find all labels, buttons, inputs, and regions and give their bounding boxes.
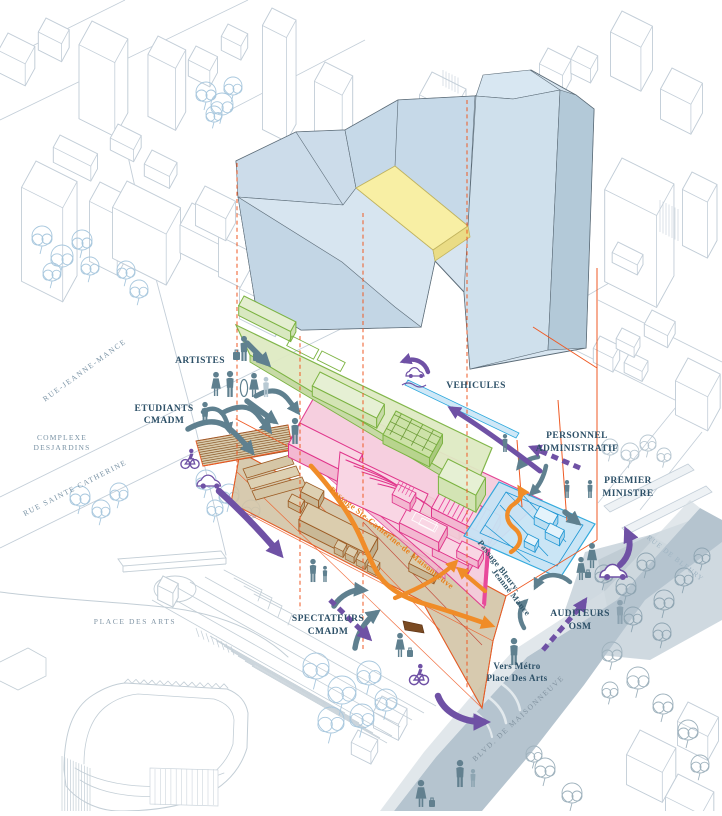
svg-text:COMPLEXE: COMPLEXE bbox=[37, 433, 87, 442]
svg-text:MINISTRE: MINISTRE bbox=[602, 489, 653, 499]
svg-text:PLACE DES ARTS: PLACE DES ARTS bbox=[94, 617, 176, 626]
svg-text:ARTISTES: ARTISTES bbox=[175, 356, 225, 366]
svg-text:PERSONNEL: PERSONNEL bbox=[546, 431, 608, 441]
svg-text:CMADM: CMADM bbox=[308, 627, 349, 637]
svg-text:Vers Métro: Vers Métro bbox=[493, 661, 540, 671]
svg-text:OSM: OSM bbox=[569, 622, 592, 632]
svg-text:AUDITEURS: AUDITEURS bbox=[550, 609, 610, 619]
svg-text:PREMIER: PREMIER bbox=[604, 476, 652, 486]
svg-text:ADMINISTRATIF: ADMINISTRATIF bbox=[536, 444, 619, 454]
svg-text:CMADM: CMADM bbox=[144, 416, 185, 426]
svg-text:Place Des Arts: Place Des Arts bbox=[486, 673, 547, 683]
svg-text:SPECTATEURS: SPECTATEURS bbox=[292, 614, 364, 624]
svg-text:DESJARDINS: DESJARDINS bbox=[33, 443, 90, 452]
svg-text:ETUDIANTS: ETUDIANTS bbox=[134, 404, 193, 414]
svg-text:VEHICULES: VEHICULES bbox=[446, 381, 506, 391]
